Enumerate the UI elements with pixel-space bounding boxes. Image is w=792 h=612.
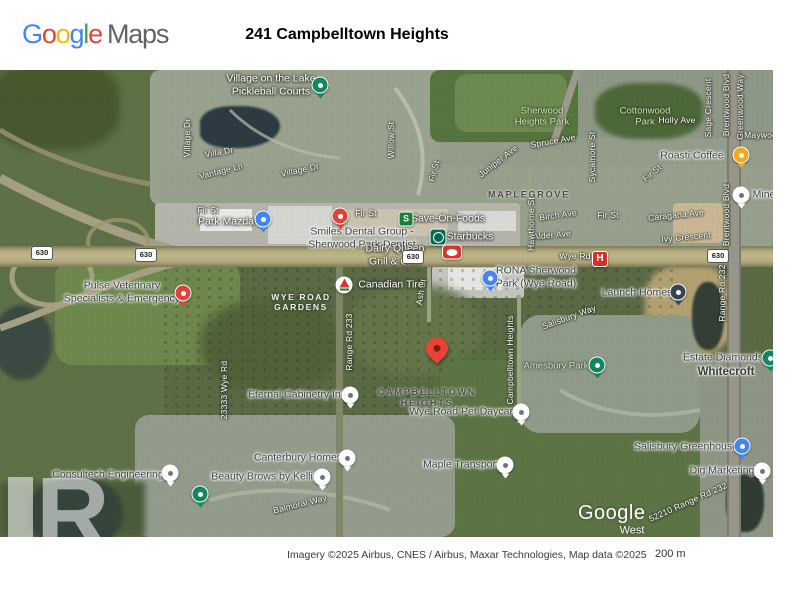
poi-marker-dairy-queen[interactable] bbox=[442, 245, 462, 260]
pin-circle-icon bbox=[162, 465, 179, 482]
pin-circle-icon bbox=[342, 387, 359, 404]
pin-circle-icon bbox=[754, 463, 771, 480]
poi-marker-consultech-engineering[interactable] bbox=[162, 465, 179, 482]
hospital-icon: H bbox=[592, 251, 608, 267]
map-canvas[interactable]: R Google Village DrVilla DrVantage LnVil… bbox=[0, 70, 773, 537]
pin-dot-icon bbox=[181, 291, 186, 296]
triangle-icon bbox=[339, 279, 349, 288]
pin-circle-icon bbox=[733, 147, 750, 164]
poi-marker-rona[interactable] bbox=[482, 270, 499, 287]
maps-logo-word: Maps bbox=[107, 19, 168, 49]
pin-circle-icon bbox=[513, 404, 530, 421]
pin-dot-icon bbox=[739, 153, 744, 158]
poi-marker-salisbury-greenhouse[interactable] bbox=[734, 438, 751, 455]
google-logo-letter: g bbox=[69, 19, 83, 49]
road-hawthorne-st bbox=[528, 168, 531, 246]
poi-marker-pickleball-courts[interactable] bbox=[312, 77, 329, 94]
poi-marker-canadian-tire[interactable] bbox=[336, 277, 353, 294]
pin-circle-icon bbox=[175, 285, 192, 302]
poi-marker-beauty-brows[interactable] bbox=[314, 469, 331, 486]
road-brentwood-blvd bbox=[727, 70, 741, 537]
google-logo-letter: e bbox=[88, 19, 102, 49]
pin-dot-icon bbox=[595, 363, 600, 368]
pin-circle-icon bbox=[734, 438, 751, 455]
poi-marker-dig-marketing[interactable] bbox=[754, 463, 771, 480]
poi-marker-wye-road-pet-daycare[interactable] bbox=[513, 404, 530, 421]
pin-dot-icon bbox=[318, 83, 323, 88]
dairy-queen-logo-icon bbox=[442, 245, 462, 260]
pin-circle-icon bbox=[192, 486, 209, 503]
page: { "header": { "logo_google": "Google", "… bbox=[0, 0, 792, 612]
google-logo-letter: G bbox=[22, 19, 42, 49]
pin-dot-icon bbox=[768, 356, 773, 361]
poi-marker-roasti-coffee[interactable] bbox=[733, 147, 750, 164]
pin-dot-icon bbox=[503, 463, 508, 468]
highway-630-shield: 630 bbox=[31, 246, 53, 260]
pin-circle-icon bbox=[762, 350, 774, 367]
google-watermark: Google bbox=[578, 502, 646, 525]
pin-circle-icon bbox=[332, 208, 349, 225]
pin-dot-icon bbox=[198, 492, 203, 497]
pin-dot-icon bbox=[348, 393, 353, 398]
pin-dot-icon bbox=[320, 475, 325, 480]
pin-dot-icon bbox=[760, 469, 765, 474]
teardrop-pin-icon bbox=[421, 333, 452, 364]
header-bar: GoogleMaps 241 Campbelltown Heights bbox=[0, 0, 792, 70]
pin-dot-icon bbox=[676, 290, 681, 295]
poi-marker-park-mazda[interactable] bbox=[255, 211, 272, 228]
pin-circle-icon bbox=[733, 187, 750, 204]
attribution-text: Imagery ©2025 Airbus, CNES / Airbus, Max… bbox=[287, 549, 647, 561]
pin-circle-icon bbox=[255, 211, 272, 228]
poi-marker-canterbury-homes[interactable] bbox=[339, 450, 356, 467]
pin-dot-icon bbox=[740, 444, 745, 449]
poi-marker-hospital[interactable]: H bbox=[592, 251, 608, 267]
pin-dot-icon bbox=[519, 410, 524, 415]
poi-marker-save-on-foods[interactable]: S bbox=[399, 212, 414, 227]
pin-circle-icon bbox=[670, 284, 687, 301]
realtor-watermark-bar bbox=[8, 477, 33, 537]
dq-ellipse-icon bbox=[447, 249, 458, 256]
pin-circle-icon bbox=[482, 270, 499, 287]
poi-marker-smiles-dental[interactable] bbox=[332, 208, 349, 225]
starbucks-ring-icon bbox=[433, 232, 444, 243]
poi-marker-pulse-veterinary[interactable] bbox=[175, 285, 192, 302]
poi-marker-launch-homes[interactable] bbox=[670, 284, 687, 301]
pin-inner-dot-icon bbox=[432, 343, 442, 353]
poi-marker-eternal-cabinetry[interactable] bbox=[342, 387, 359, 404]
pin-circle-icon bbox=[497, 457, 514, 474]
poi-marker-estate-diamonds[interactable] bbox=[762, 350, 774, 367]
highway-630-shield: 630 bbox=[135, 248, 157, 262]
google-logo-letter: o bbox=[42, 19, 56, 49]
google-maps-logo[interactable]: GoogleMaps bbox=[22, 19, 168, 50]
canadian-tire-logo-icon bbox=[336, 277, 353, 294]
pin-dot-icon bbox=[338, 214, 343, 219]
triangle-base-icon bbox=[340, 289, 349, 291]
road-wye-rd bbox=[0, 246, 773, 267]
pin-circle-icon bbox=[314, 469, 331, 486]
pin-circle-icon bbox=[339, 450, 356, 467]
poi-marker-mine[interactable] bbox=[733, 187, 750, 204]
road-ash-st bbox=[427, 267, 431, 322]
highway-630-shield: 630 bbox=[707, 249, 729, 263]
scale-text: 200 m bbox=[655, 548, 686, 560]
highway-ramps-overlay bbox=[0, 70, 773, 537]
destination-pin[interactable] bbox=[426, 337, 448, 359]
poi-marker-maple-transport[interactable] bbox=[497, 457, 514, 474]
google-logo-wordmark: Google bbox=[22, 19, 102, 49]
pin-dot-icon bbox=[739, 193, 744, 198]
google-logo-letter: o bbox=[56, 19, 70, 49]
grocery-icon: S bbox=[399, 212, 414, 227]
pin-dot-icon bbox=[345, 456, 350, 461]
pin-dot-icon bbox=[488, 276, 493, 281]
pin-dot-icon bbox=[168, 471, 173, 476]
poi-marker-amesbury-park[interactable] bbox=[589, 357, 606, 374]
poi-marker-park[interactable] bbox=[192, 486, 209, 503]
pin-circle-icon bbox=[589, 357, 606, 374]
poi-marker-starbucks[interactable] bbox=[430, 229, 447, 246]
pin-dot-icon bbox=[261, 217, 266, 222]
highway-630-shield: 630 bbox=[402, 250, 424, 264]
starbucks-logo-icon bbox=[430, 229, 447, 246]
page-title: 241 Campbelltown Heights bbox=[245, 26, 449, 44]
pin-circle-icon bbox=[312, 77, 329, 94]
